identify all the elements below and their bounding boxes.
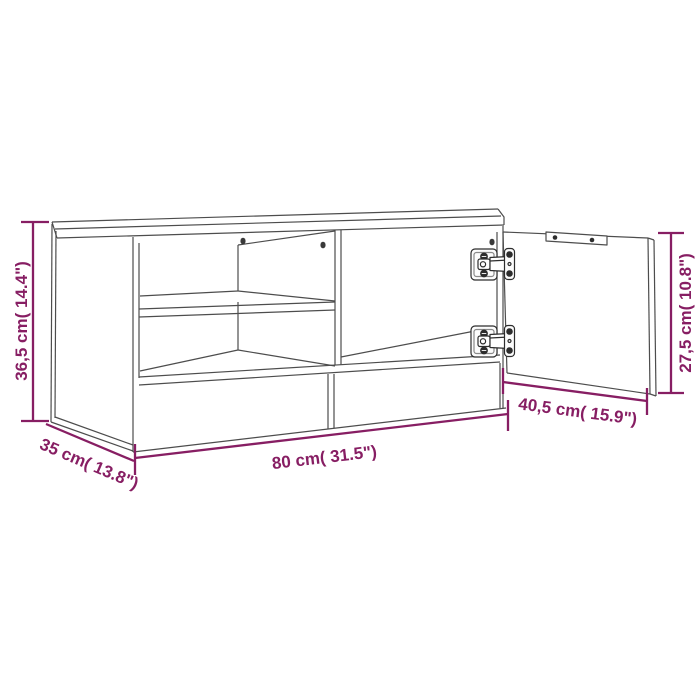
screw-icon <box>553 235 558 240</box>
hinge-bottom <box>471 326 515 358</box>
screw-icon <box>507 271 512 276</box>
depth-dimension-label: 35 cm( 13.8") <box>37 435 141 494</box>
cabinet-front-frame <box>133 226 506 452</box>
cabinet-center-divider <box>238 230 341 366</box>
cable-hole-icon <box>489 239 494 246</box>
width-dimension-label: 80 cm( 31.5") <box>271 442 378 473</box>
door-mounting-plate <box>546 232 607 245</box>
cable-hole-icon <box>320 242 325 249</box>
cabinet-top-panel <box>52 209 504 238</box>
cabinet-left-side-panel <box>51 224 133 451</box>
screw-icon <box>590 238 595 243</box>
door-height-dimension-label: 27,5 cm( 10.8") <box>676 253 695 373</box>
dimension-diagram: 36,5 cm( 14.4") 27,5 cm( 10.8") 80 cm( 3… <box>0 0 700 700</box>
dimension-annotations <box>21 222 684 475</box>
cabinet-bottom-panel <box>139 330 500 385</box>
screw-icon <box>507 252 512 257</box>
tv-cabinet-drawing: 36,5 cm( 14.4") 27,5 cm( 10.8") 80 cm( 3… <box>0 0 700 700</box>
door-width-dimension-label: 40,5 cm( 15.9") <box>517 394 638 428</box>
hinge-top <box>471 249 515 281</box>
cable-hole-icon <box>240 238 245 245</box>
dimension-labels: 36,5 cm( 14.4") 27,5 cm( 10.8") 80 cm( 3… <box>12 253 695 493</box>
cabinet-shelf <box>139 291 335 317</box>
height-dimension-label: 36,5 cm( 14.4") <box>12 261 31 381</box>
cabinet-door <box>503 232 656 396</box>
